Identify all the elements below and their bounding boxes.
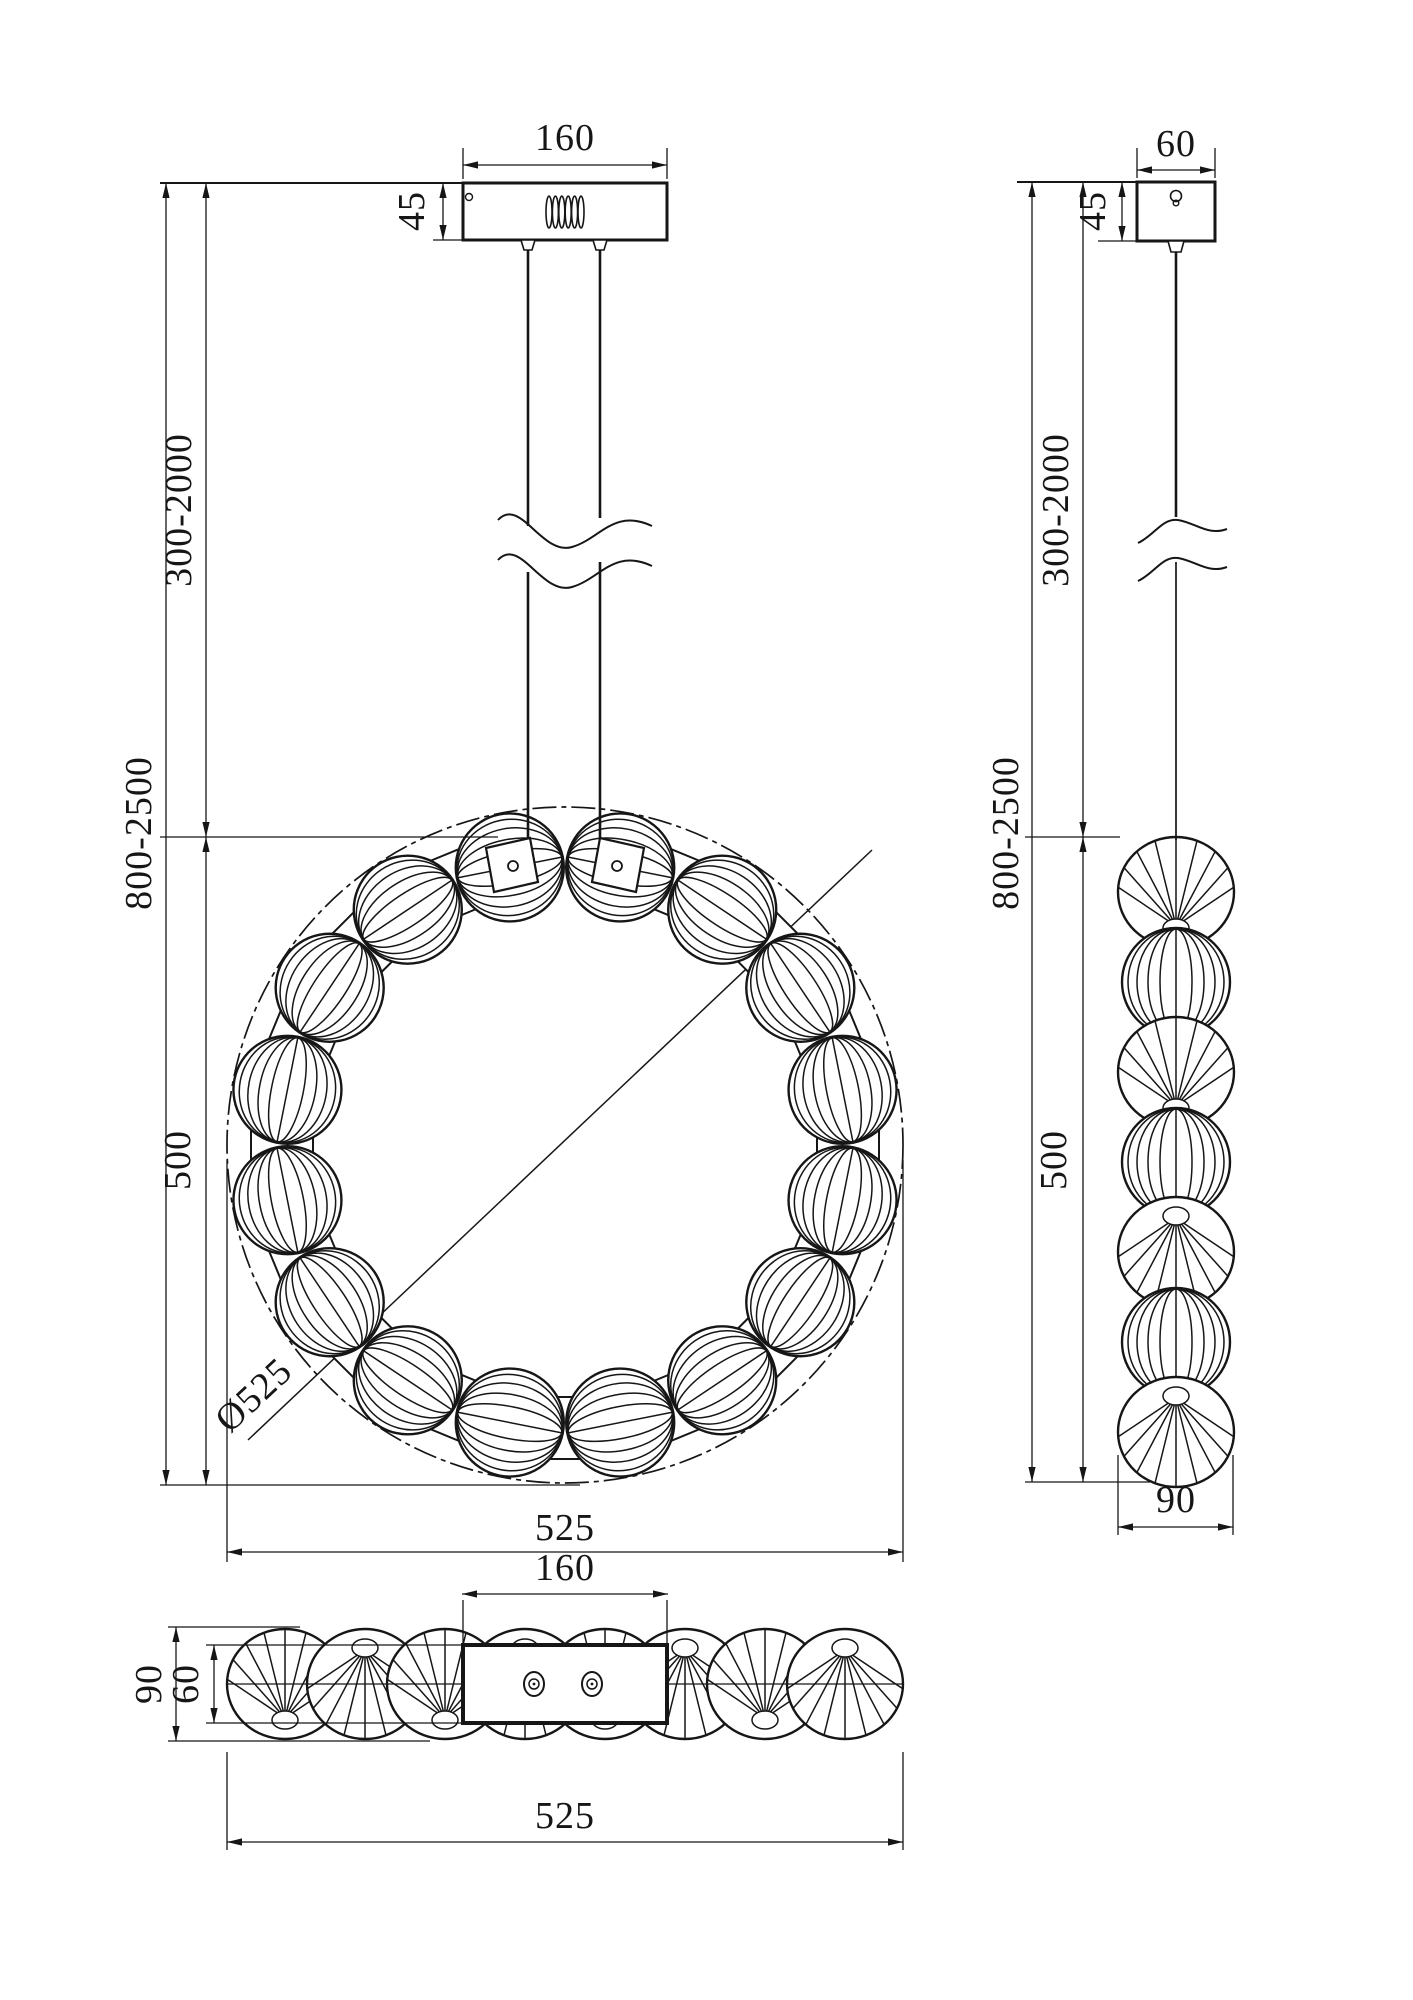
side-body-width-label: 90 [1156, 1479, 1196, 1521]
front-wire-gland-right [593, 240, 607, 250]
side-ring-height-label: 500 [1033, 1130, 1075, 1190]
side-break-symbol [1138, 520, 1227, 581]
side-wire-gland [1168, 241, 1184, 252]
side-canopy-height-label: 45 [1072, 191, 1114, 231]
side-bead [1118, 1377, 1234, 1487]
front-canopy-height-label: 45 [391, 191, 433, 231]
front-suspension-wires [528, 250, 600, 860]
front-canopy-width-label: 160 [535, 117, 595, 159]
front-overall-width-label: 525 [535, 1507, 595, 1549]
side-overall-height-label: 800-2500 [985, 756, 1027, 910]
bottom-body-depth-label: 90 [128, 1664, 170, 1704]
technical-drawing-page: 160 45 300-2000 800-2500 500 Ø525 525 60… [0, 0, 1413, 2000]
mounting-plate [463, 1645, 667, 1723]
front-overall-height-label: 800-2500 [118, 756, 160, 910]
front-break-symbol [498, 514, 652, 588]
front-ring-diameter-label: Ø525 [207, 1350, 300, 1441]
front-ring-height-label: 500 [157, 1130, 199, 1190]
pendant-lamp-dimension-drawing: 160 45 300-2000 800-2500 500 Ø525 525 60… [0, 0, 1413, 2000]
bottom-view-plate [463, 1645, 667, 1723]
side-canopy-width-label: 60 [1156, 123, 1196, 165]
bottom-plate-depth-label: 60 [165, 1664, 207, 1704]
front-hanger-brackets [486, 838, 644, 892]
side-suspension-range-label: 300-2000 [1035, 433, 1077, 587]
bottom-plate-width-label: 160 [535, 1547, 595, 1589]
front-wire-gland-left [521, 240, 535, 250]
bottom-overall-width-label: 525 [535, 1795, 595, 1837]
front-suspension-range-label: 300-2000 [158, 433, 200, 587]
